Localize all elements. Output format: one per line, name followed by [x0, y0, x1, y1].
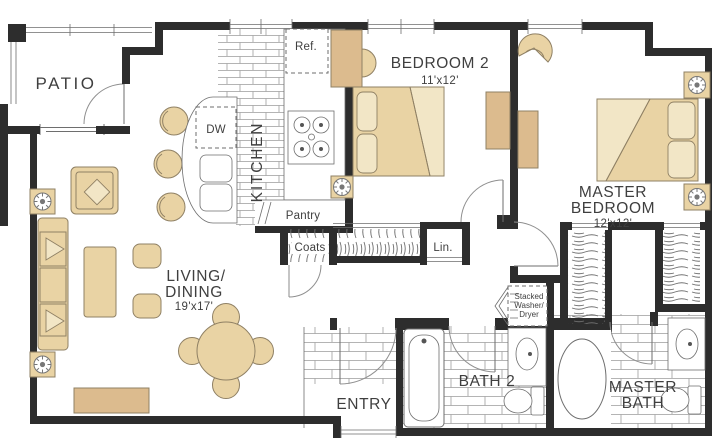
- room-label-entry: ENTRY: [336, 396, 391, 413]
- bedroom2-desk: [331, 30, 362, 87]
- bedroom2-dresser: [486, 92, 510, 149]
- media-console: [74, 388, 149, 413]
- label-pantry: Pantry: [286, 210, 320, 222]
- bath2-toilet: [504, 387, 544, 415]
- label-linen: Lin.: [433, 242, 452, 254]
- master-closet-right-slider: [664, 224, 700, 228]
- patio-sliding-door: [40, 124, 104, 135]
- room-label-kitchen: KITCHEN: [249, 122, 266, 203]
- master-dresser: [518, 111, 538, 168]
- master-bed: [597, 99, 698, 181]
- bedroom2-bed: [353, 87, 444, 176]
- dims-bedroom2: 11'x12': [421, 75, 459, 87]
- coffee-table: [84, 247, 116, 317]
- room-label-masterbath-1: MASTER: [609, 379, 677, 396]
- master-tub-deck: [554, 330, 611, 428]
- bedroom2-door-arc: [461, 180, 503, 222]
- bar-stool: [157, 193, 185, 221]
- ottoman: [133, 244, 161, 268]
- dims-master: 12'x12': [594, 218, 633, 230]
- sofa: [38, 218, 68, 350]
- master-door-arc: [514, 222, 558, 266]
- label-coats: Coats: [294, 242, 325, 254]
- end-table-lamp: [30, 189, 55, 214]
- room-label-master-1: MASTER: [579, 184, 647, 201]
- linen-closet-door: [427, 258, 462, 262]
- room-label-master-2: BEDROOM: [571, 200, 655, 217]
- end-table-lamp: [30, 352, 55, 377]
- dims-living: 19'x17': [175, 301, 214, 313]
- master-nightstand: [684, 72, 710, 98]
- label-dishwasher: DW: [206, 124, 226, 136]
- label-washer-3: Dryer: [519, 310, 539, 319]
- armchair: [71, 167, 118, 214]
- bar-stool: [154, 150, 182, 178]
- master-window: [528, 19, 582, 34]
- dining-set: [179, 304, 274, 399]
- bar-stool: [160, 107, 188, 135]
- patio-post: [8, 24, 26, 42]
- room-label-patio: PATIO: [36, 74, 97, 93]
- bedroom2-window: [368, 19, 434, 34]
- master-closet-right: [663, 230, 700, 304]
- label-refrigerator: Ref.: [295, 41, 317, 53]
- room-label-masterbath-2: BATH: [622, 395, 665, 412]
- label-washer-2: Washer/: [514, 301, 544, 310]
- bedroom2-closet: [337, 229, 420, 256]
- coats-door-arc: [289, 265, 321, 297]
- master-nightstand: [684, 184, 710, 210]
- patio-railing-left: [11, 42, 16, 104]
- ottoman: [133, 294, 161, 318]
- entry-opening: [341, 426, 396, 438]
- master-closet-left: [568, 230, 605, 324]
- kitchen-floor-tile: [218, 29, 284, 99]
- room-label-bath2: BATH 2: [459, 373, 516, 390]
- patio-railing-top: [26, 24, 152, 36]
- label-washer-1: Stacked: [515, 292, 544, 301]
- stove: [288, 111, 334, 164]
- floor-plan: PATIO KITCHEN Ref. DW Pantry BEDROOM 2 1…: [0, 0, 720, 440]
- floor-plan-svg: PATIO KITCHEN Ref. DW Pantry BEDROOM 2 1…: [0, 0, 720, 440]
- closets: [288, 224, 700, 325]
- bedroom2-nightstand: [331, 176, 353, 198]
- room-label-living-2: DINING: [165, 284, 223, 301]
- room-label-living-1: LIVING/: [166, 268, 225, 285]
- room-label-bedroom2: BEDROOM 2: [391, 55, 489, 72]
- master-corner-chair: [518, 34, 552, 62]
- desk-chair: [362, 49, 376, 77]
- dining-table: [197, 322, 255, 380]
- master-vanity: [668, 318, 705, 370]
- entry-floor-tile: [304, 327, 396, 384]
